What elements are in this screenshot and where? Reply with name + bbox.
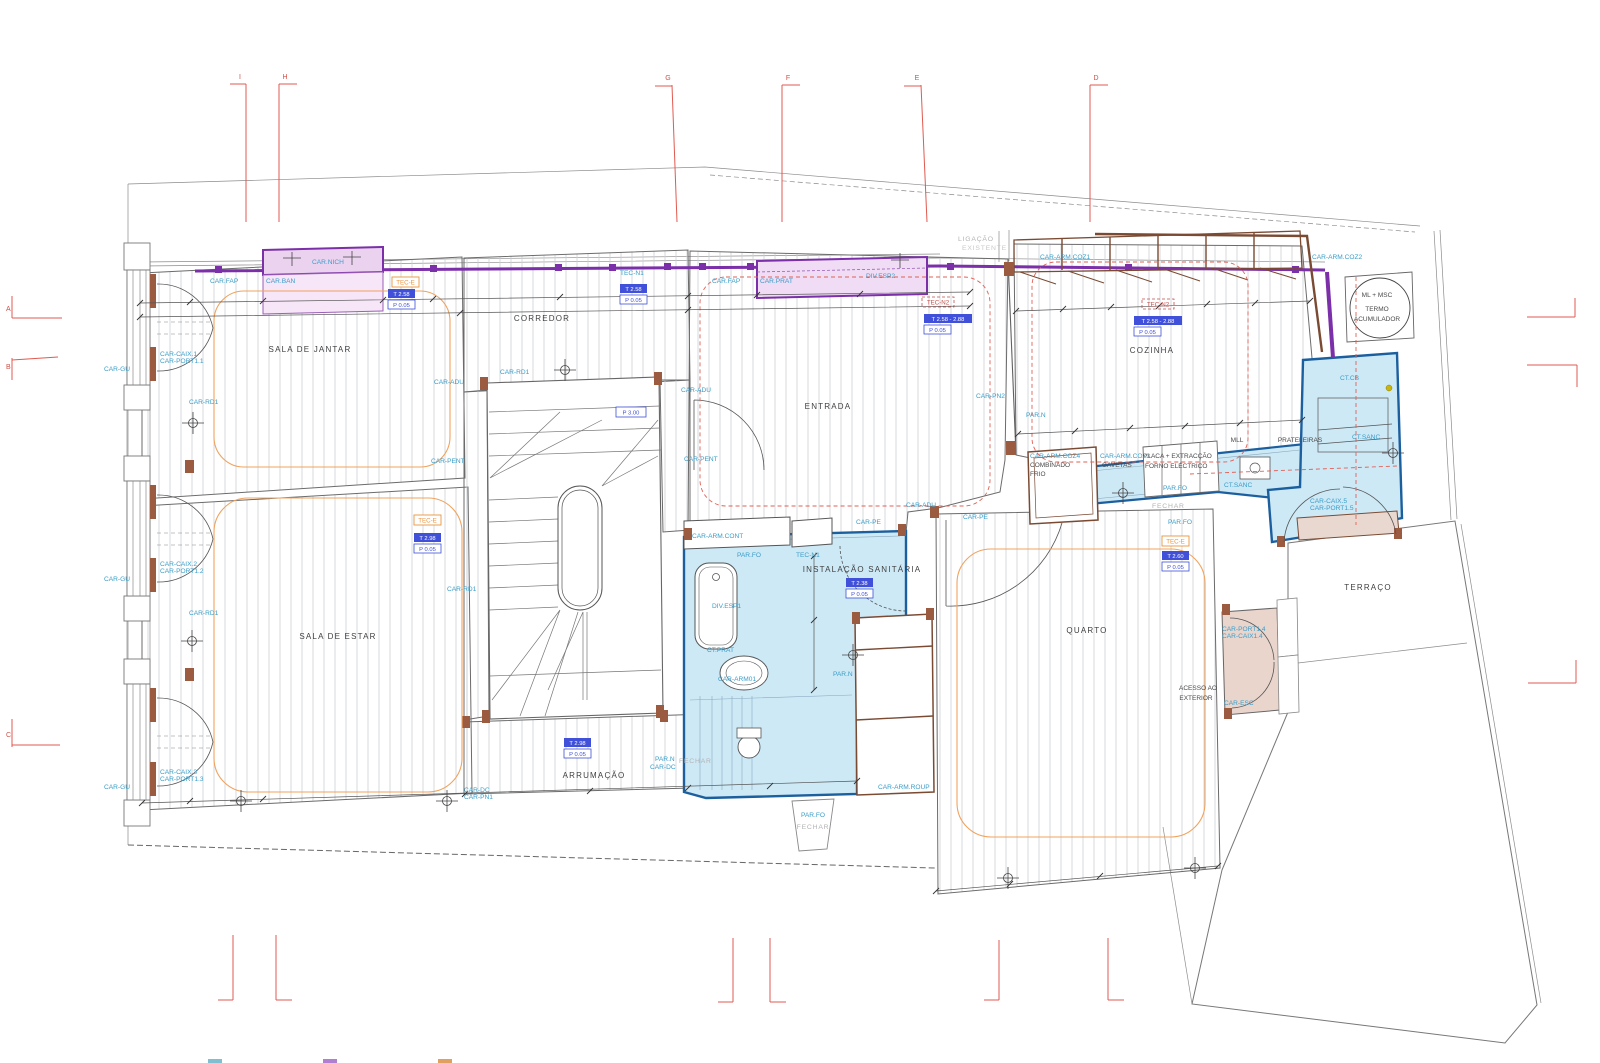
label-car-adu-3: CAR-ADU (906, 502, 936, 509)
svg-text:TEC-E: TEC-E (1166, 539, 1185, 546)
room-label-acesso-1: ACESSO AO (1179, 685, 1217, 692)
grid-letter-a: A (6, 306, 11, 313)
grid-letter-c: C (6, 732, 11, 739)
label-car-port1-5: CAR-PORT1.5 (1310, 505, 1354, 512)
label-car-dc-1: CAR-DC (650, 764, 676, 771)
label-ml-msc: ML + MSC (1362, 292, 1393, 299)
label-par-n-2: PAR.N (833, 671, 853, 678)
label-car-port1-1: CAR-PORT1.1 (160, 358, 204, 365)
label-car-pn1: CAR-PN1 (464, 794, 493, 801)
svg-text:P 0.05: P 0.05 (569, 752, 586, 758)
svg-text:T 2.58 - 2.88: T 2.58 - 2.88 (932, 317, 965, 323)
label-div-esp1: DIV.ESP1 (712, 603, 741, 610)
svg-text:P 0.05: P 0.05 (929, 328, 946, 334)
svg-text:T 2.58: T 2.58 (393, 292, 409, 298)
svg-text:T 2.38: T 2.38 (851, 581, 867, 587)
svg-text:TEC-N2: TEC-N2 (927, 300, 950, 307)
tec-e-tag-2: TEC-E (414, 515, 441, 525)
label-car-arm-coz1: CAR-ARM.COZ1 (1040, 254, 1091, 261)
svg-text:P 0.05: P 0.05 (851, 592, 868, 598)
room-label-quarto: QUARTO (1066, 626, 1107, 635)
label-car-caix3: CAR-CAIX.3 (160, 769, 197, 776)
label-par-n-1: PAR.N (1026, 412, 1046, 419)
room-label-entrada: ENTRADA (805, 402, 852, 411)
label-car-pent-2: CAR-PENT (684, 456, 718, 463)
label-ct-cb: CT.CB (1340, 375, 1360, 382)
room-label-cozinha: COZINHA (1130, 346, 1174, 355)
label-fechar-arrumacao: FECHAR (679, 758, 712, 765)
svg-text:P 0.05: P 0.05 (393, 303, 410, 309)
label-car-arm-coz2: CAR-ARM.COZ2 (1312, 254, 1363, 261)
label-car-gu-2: CAR-GU (104, 576, 130, 583)
tec-e-tag-1: TEC-E (392, 277, 419, 287)
grid-letter-b: B (6, 364, 11, 371)
room-label-acesso-2: EXTERIOR (1179, 695, 1213, 702)
label-forno-electrico: FORNO ELÉCTRICO (1145, 461, 1207, 470)
label-car-port1-3: CAR-PORT1.3 (160, 776, 204, 783)
label-car-prat: CAR.PRAT (760, 278, 793, 285)
label-car-ban: CAR.BAN (266, 278, 296, 285)
acesso-bay (1222, 608, 1280, 715)
svg-text:P 0.05: P 0.05 (1167, 565, 1184, 571)
label-car-esc: CAR-ESC (1224, 700, 1254, 707)
value-p300: P 3.00 (616, 407, 646, 417)
label-car-pn2: CAR-PN2 (976, 393, 1005, 400)
floor-plan-svg: I H G F E D A B C SALA DE JANTAR CORREDO… (0, 0, 1600, 1063)
label-car-caix5: CAR-CAIX.5 (1310, 498, 1347, 505)
label-car-caix1: CAR-CAIX.1 (160, 351, 197, 358)
room-label-sala-de-estar: SALA DE ESTAR (299, 632, 376, 641)
svg-text:P 3.00: P 3.00 (623, 411, 640, 417)
label-tec-n1-corr: TEC-N1 (620, 270, 644, 277)
label-par-fo-4: PAR.FO (801, 812, 825, 819)
svg-text:TEC-E: TEC-E (396, 280, 415, 287)
label-ct-sanc-1: CT.SANC (1224, 482, 1252, 489)
label-mll: MLL (1231, 437, 1244, 444)
label-car-pe-1: CAR-PE (856, 519, 882, 526)
room-corredor (464, 250, 690, 392)
svg-text:T 2.98: T 2.98 (569, 741, 585, 747)
label-car-adu-1: CAR-ADU (434, 379, 464, 386)
label-fechar-trap: FECHAR (797, 824, 830, 831)
label-car-arm-coz4: CAR-ARM.COZ4 (1030, 453, 1081, 460)
label-car-arm-cont: CAR-ARM.CONT (692, 533, 743, 540)
room-label-sala-de-jantar: SALA DE JANTAR (269, 345, 352, 354)
wardrobe-roup (855, 614, 934, 795)
grid-letter-h: H (282, 74, 287, 81)
label-car-port1-4: CAR-PORT1.4 (1222, 626, 1266, 633)
svg-text:T 2.58: T 2.58 (625, 287, 641, 293)
label-car-caix2: CAR-CAIX.2 (160, 561, 197, 568)
svg-text:TEC-E: TEC-E (418, 518, 437, 525)
label-ligacao: LIGAÇÃO (958, 234, 994, 243)
label-existente: EXISTENTE (962, 245, 1007, 252)
label-acumulador: ACUMULADOR (1354, 316, 1401, 323)
label-car-port1-2: CAR-PORT1.2 (160, 568, 204, 575)
label-par-fo-3: PAR.FO (1168, 519, 1192, 526)
room-label-corredor: CORREDOR (514, 314, 570, 323)
terrace (1163, 521, 1541, 1043)
label-car-gu-3: CAR-GU (104, 784, 130, 791)
svg-text:P 0.05: P 0.05 (419, 547, 436, 553)
svg-text:T 2.60: T 2.60 (1167, 554, 1183, 560)
label-car-nich: CAR.NICH (312, 259, 344, 266)
grid-letter-d: D (1093, 75, 1098, 82)
room-label-arrumacao: ARRUMAÇÃO (563, 771, 626, 780)
floor-plan-page: I H G F E D A B C SALA DE JANTAR CORREDO… (0, 0, 1600, 1063)
svg-text:T 2.98: T 2.98 (419, 536, 435, 542)
svg-text:T 2.58 - 2.88: T 2.58 - 2.88 (1142, 319, 1175, 325)
label-frio: FRIO (1030, 471, 1046, 478)
grid-letter-i: I (239, 74, 241, 81)
label-gavetas: GAVETAS (1102, 462, 1132, 469)
label-div-esp2: DIV.ESP2 (866, 273, 895, 280)
legend-chips (208, 1059, 452, 1063)
label-prateleiras: PRATELEIRAS (1278, 437, 1323, 444)
label-par-n-3: PAR.N (655, 756, 675, 763)
label-car-fap-2: CAR.FAP (712, 278, 741, 285)
label-car-rd1-4: CAR-RD1 (189, 610, 219, 617)
label-car-rd1-1: CAR-RD1 (189, 399, 219, 406)
cabinet-car-prat (757, 253, 927, 298)
grid-letter-e: E (915, 75, 920, 82)
svg-text:P 0.05: P 0.05 (625, 298, 642, 304)
label-car-rd1-2: CAR-RD1 (500, 369, 530, 376)
label-ct-prat: CT.PRAT (707, 647, 734, 654)
label-car-arm-roup: CAR-ARM.ROUP (878, 784, 930, 791)
label-car-pe-2: CAR-PE (963, 514, 989, 521)
grid-letter-f: F (786, 75, 790, 82)
label-combinado: COMBINADO (1030, 462, 1070, 469)
label-ct-sanc-2: CT.SANC (1352, 434, 1380, 441)
label-tec-n1-bath: TEC-N1 (796, 552, 820, 559)
room-cozinha (1014, 244, 1312, 468)
label-par-fo-1: PAR.FO (737, 552, 761, 559)
label-car-gu-1: CAR-GU (104, 366, 130, 373)
label-car-fap-1: CAR.FAP (210, 278, 239, 285)
label-car-caix1-4: CAR-CAIX1.4 (1222, 633, 1263, 640)
label-car-dc-2: CAR-DC (464, 787, 490, 794)
tec-e-tag-3: TEC-E (1162, 536, 1189, 546)
label-car-pent-1: CAR-PENT (431, 458, 465, 465)
label-car-rd1-3: CAR-RD1 (447, 586, 477, 593)
label-par-fo-2: PAR.FO (1163, 485, 1187, 492)
label-car-arm-coz3: CAR-ARM.COZ3 (1100, 453, 1151, 460)
svg-text:TEC-N2: TEC-N2 (1147, 302, 1170, 309)
label-termo: TERMO (1365, 306, 1388, 313)
label-fechar-quarto: FECHAR (1152, 503, 1185, 510)
grid-letter-g: G (665, 75, 670, 82)
label-placa-extraccao: PLACA + EXTRACÇÃO (1143, 451, 1212, 460)
room-label-instalacao-sanitaria: INSTALAÇÃO SANITÁRIA (803, 565, 922, 574)
staircase (480, 372, 664, 723)
svg-text:P 0.05: P 0.05 (1139, 330, 1156, 336)
room-label-terraco: TERRAÇO (1344, 583, 1392, 592)
label-car-adu-2: CAR-ADU (681, 387, 711, 394)
label-car-arm01: CAR-ARM01 (718, 676, 756, 683)
